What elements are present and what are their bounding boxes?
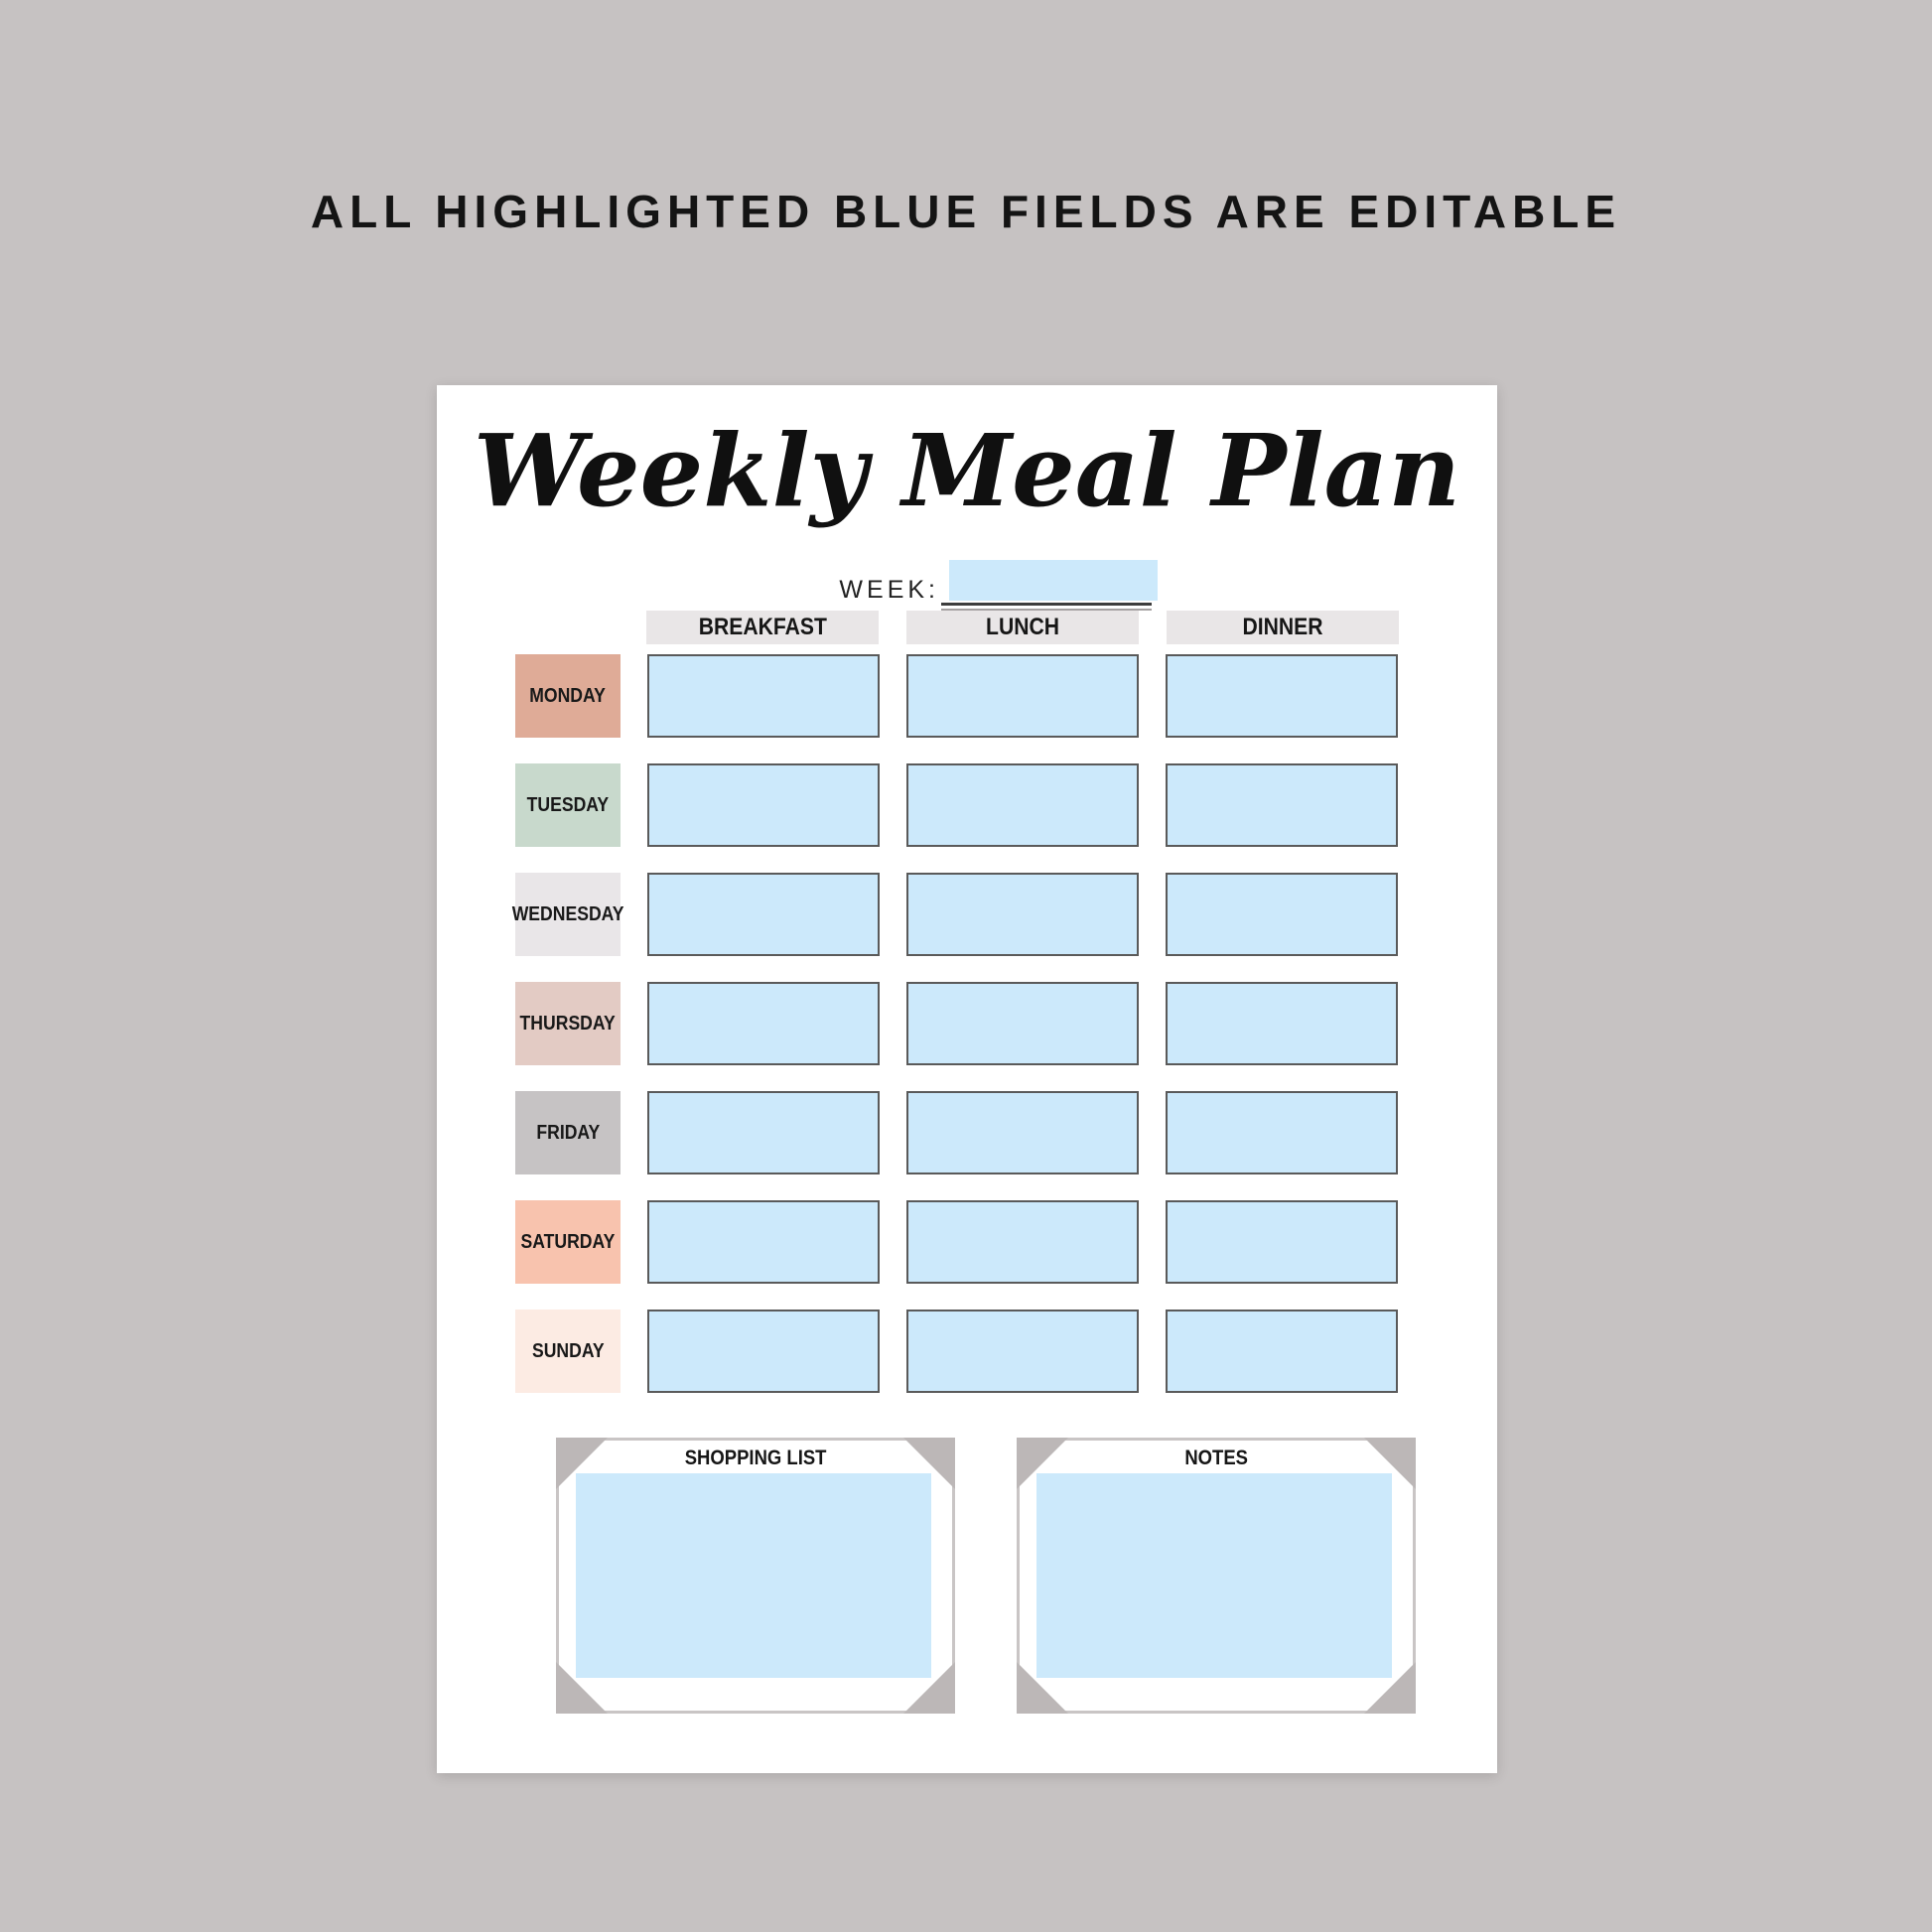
week-label: WEEK: xyxy=(774,576,939,604)
column-header-breakfast: BREAKFAST xyxy=(646,611,879,644)
notes-input-area[interactable] xyxy=(1036,1473,1392,1678)
column-header-dinner-label: DINNER xyxy=(1243,614,1323,641)
cell-friday-breakfast[interactable] xyxy=(647,1091,880,1174)
shopping-list-title: SHOPPING LIST xyxy=(559,1447,952,1470)
notes-title: NOTES xyxy=(1020,1447,1413,1470)
page-title: Weekly Meal Plan xyxy=(437,401,1497,540)
day-label-tuesday-text: TUESDAY xyxy=(527,794,609,817)
cell-monday-breakfast[interactable] xyxy=(647,654,880,738)
week-input-field[interactable] xyxy=(949,560,1158,601)
day-label-sunday: SUNDAY xyxy=(515,1310,621,1393)
cell-saturday-dinner[interactable] xyxy=(1166,1200,1398,1284)
shopping-list-input-area[interactable] xyxy=(576,1473,931,1678)
day-label-wednesday-text: WEDNESDAY xyxy=(512,903,624,926)
column-header-lunch: LUNCH xyxy=(906,611,1139,644)
day-label-sunday-text: SUNDAY xyxy=(532,1340,605,1363)
cell-thursday-lunch[interactable] xyxy=(906,982,1139,1065)
cell-monday-dinner[interactable] xyxy=(1166,654,1398,738)
day-label-tuesday: TUESDAY xyxy=(515,763,621,847)
day-label-thursday-text: THURSDAY xyxy=(520,1013,616,1035)
column-header-breakfast-label: BREAKFAST xyxy=(698,614,826,641)
cell-wednesday-dinner[interactable] xyxy=(1166,873,1398,956)
cell-tuesday-dinner[interactable] xyxy=(1166,763,1398,847)
cell-sunday-lunch[interactable] xyxy=(906,1310,1139,1393)
column-header-lunch-label: LUNCH xyxy=(986,614,1059,641)
day-label-monday: MONDAY xyxy=(515,654,621,738)
day-label-saturday: SATURDAY xyxy=(515,1200,621,1284)
notes-title-text: NOTES xyxy=(1184,1447,1248,1470)
day-label-friday-text: FRIDAY xyxy=(536,1122,600,1145)
day-label-monday-text: MONDAY xyxy=(530,685,607,708)
cell-wednesday-breakfast[interactable] xyxy=(647,873,880,956)
cell-wednesday-lunch[interactable] xyxy=(906,873,1139,956)
shopping-list-title-text: SHOPPING LIST xyxy=(685,1447,827,1470)
bottom-sections: SHOPPING LIST NOTES xyxy=(556,1438,1416,1714)
cell-friday-dinner[interactable] xyxy=(1166,1091,1398,1174)
banner-text: ALL HIGHLIGHTED BLUE FIELDS ARE EDITABLE xyxy=(0,185,1932,238)
cell-thursday-breakfast[interactable] xyxy=(647,982,880,1065)
cell-tuesday-lunch[interactable] xyxy=(906,763,1139,847)
day-label-friday: FRIDAY xyxy=(515,1091,621,1174)
column-headers: BREAKFAST LUNCH DINNER xyxy=(646,611,1399,644)
cell-thursday-dinner[interactable] xyxy=(1166,982,1398,1065)
shopping-list-box: SHOPPING LIST xyxy=(556,1438,955,1714)
cell-sunday-breakfast[interactable] xyxy=(647,1310,880,1393)
column-header-dinner: DINNER xyxy=(1167,611,1399,644)
planner-page: Weekly Meal Plan WEEK: BREAKFAST LUNCH D… xyxy=(437,385,1497,1773)
cell-saturday-breakfast[interactable] xyxy=(647,1200,880,1284)
cell-tuesday-breakfast[interactable] xyxy=(647,763,880,847)
cell-sunday-dinner[interactable] xyxy=(1166,1310,1398,1393)
day-label-wednesday: WEDNESDAY xyxy=(515,873,621,956)
cell-monday-lunch[interactable] xyxy=(906,654,1139,738)
day-label-saturday-text: SATURDAY xyxy=(521,1231,616,1254)
cell-friday-lunch[interactable] xyxy=(906,1091,1139,1174)
cell-saturday-lunch[interactable] xyxy=(906,1200,1139,1284)
notes-box: NOTES xyxy=(1017,1438,1416,1714)
meal-grid: MONDAY TUESDAY WEDNESDAY THURSDAY FRIDAY… xyxy=(515,654,1398,1393)
week-underline xyxy=(941,603,1152,611)
day-label-thursday: THURSDAY xyxy=(515,982,621,1065)
